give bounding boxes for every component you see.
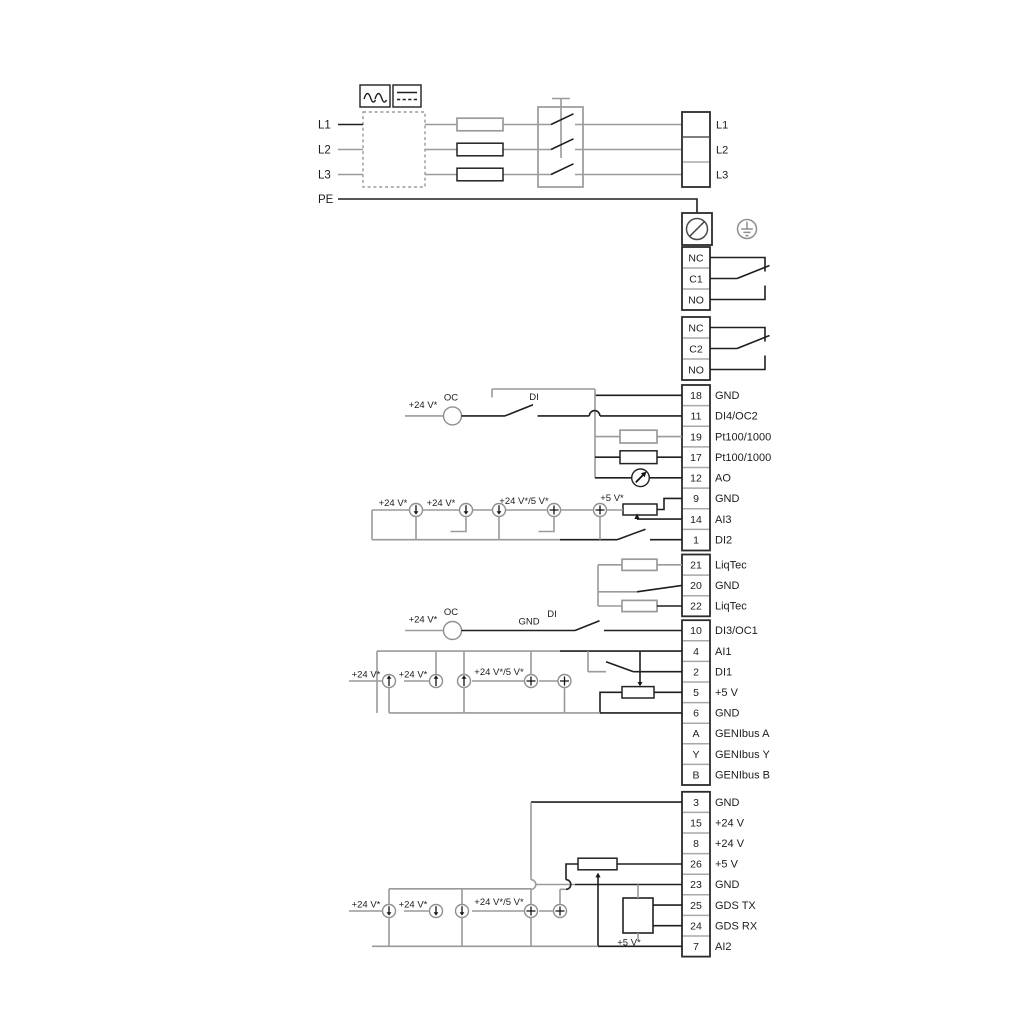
relay-1-block: NC C1 NO: [682, 247, 770, 310]
liqtec-sensor: [622, 559, 657, 570]
v24-v5-annotation: +24 V*/5 V*: [474, 897, 524, 908]
supply-module: +24 V* +24 V* +24 V*/5 V*: [349, 889, 567, 947]
terminal-label: GND: [715, 493, 740, 505]
terminal-label: +24 V: [715, 838, 745, 850]
terminal-number: 26: [690, 859, 702, 871]
terminal-number: 12: [690, 473, 702, 485]
terminal-label: Pt100/1000: [715, 431, 771, 443]
terminal-number: 22: [690, 601, 702, 613]
terminal-number: 1: [693, 534, 699, 546]
terminal-number: 3: [693, 797, 699, 809]
relay2-terminal: NC: [688, 322, 704, 334]
terminal-number: 20: [690, 580, 702, 592]
di-annotation: DI: [529, 392, 539, 403]
relay2-contact: [710, 328, 770, 370]
relay1-terminal: NO: [688, 294, 704, 306]
gnd-annotation: GND: [518, 616, 539, 627]
terminal-label: GND: [715, 580, 740, 592]
io-strip-top: 18 11 19 17 12 9 14 1 GND DI4/OC2 Pt100/…: [682, 385, 771, 551]
v5-annotation: +5 V*: [600, 493, 624, 504]
terminal-number: 2: [693, 666, 699, 678]
mains-input-label: L2: [318, 144, 331, 156]
terminal-label: AI3: [715, 514, 732, 526]
v24-annotation: +24 V*: [399, 669, 428, 680]
terminal-number: 6: [693, 708, 699, 720]
v24-annotation: +24 V*: [352, 899, 381, 910]
terminal-label: GND: [715, 708, 740, 720]
fuse: [457, 118, 503, 131]
terminal-label: GND: [715, 879, 740, 891]
mains-input-label: PE: [318, 194, 334, 206]
gds-sensor-box: +5 V*: [617, 885, 682, 949]
relay1-terminal: NC: [688, 252, 704, 264]
io-strip-bottom: 3 15 8 26 23 25 24 7 GND +24 V +24 V +5 …: [682, 792, 758, 957]
v24-v5-annotation: +24 V*/5 V*: [474, 667, 524, 678]
terminal-number: 11: [691, 411, 702, 423]
terminal-label: LiqTec: [715, 560, 747, 572]
terminal-label: GENIbus A: [715, 728, 770, 740]
terminal-number: 19: [690, 431, 702, 443]
relay2-terminal: C2: [689, 343, 703, 355]
ac-waveform-icon: [360, 85, 390, 107]
liqtec-sensor: [622, 600, 657, 611]
di2-switch-blade: [617, 529, 646, 540]
terminal-number: 15: [690, 817, 702, 829]
di-switch-blade: [505, 405, 533, 416]
v24-annotation: +24 V*: [399, 899, 428, 910]
ai3-di2-circuit: +24 V* +24 V* +24 V*/5 V* +5 V*: [372, 493, 682, 540]
terminal-number: 17: [690, 452, 702, 464]
terminal-label: GDS RX: [715, 920, 758, 932]
rcd-dashed-box: [363, 112, 425, 187]
relay-2-block: NC C2 NO: [682, 317, 770, 380]
v24-v5-annotation: +24 V*/5 V*: [499, 496, 549, 507]
wiper-arrow: [595, 873, 600, 878]
terminal-number: 4: [693, 646, 699, 658]
terminal-number: 24: [690, 920, 702, 932]
pt100-resistor: [620, 451, 657, 464]
schematic-svg: L1 L2 L3 PE: [0, 0, 1024, 1024]
potentiometer: [623, 504, 657, 515]
terminal-label: GENIbus Y: [715, 749, 770, 761]
v24-annotation: +24 V*: [427, 498, 456, 509]
mains-output-label: L1: [716, 119, 728, 131]
terminal-number: 7: [693, 941, 699, 953]
terminal-number: 5: [693, 687, 699, 699]
pt100-resistor: [620, 430, 657, 443]
terminal-label: GND: [715, 797, 740, 809]
di-switch-blade: [575, 621, 600, 631]
wiper-arrow: [638, 682, 643, 686]
liqtec-strip: 21 20 22 LiqTec GND LiqTec: [598, 555, 747, 617]
terminal-label: LiqTec: [715, 601, 747, 613]
fuse: [457, 168, 503, 181]
oc-circle-icon: [444, 407, 462, 425]
dc-lines-icon: [393, 85, 421, 107]
terminal-label: DI4/OC2: [715, 411, 758, 423]
di1-switch-blade: [606, 662, 634, 672]
terminal-label: GDS TX: [715, 900, 756, 912]
terminal-number: 18: [690, 390, 702, 402]
terminal-label: GND: [715, 390, 740, 402]
terminal-number: 23: [690, 879, 702, 891]
fuse: [457, 143, 503, 156]
v24-annotation: +24 V*: [379, 498, 408, 509]
terminal-label: DI3/OC1: [715, 625, 758, 637]
terminal-number: 9: [693, 493, 699, 505]
relay2-terminal: NO: [688, 364, 704, 376]
potentiometer: [578, 858, 617, 870]
terminal-number: 10: [690, 625, 702, 637]
mains-wires: [338, 125, 697, 214]
wire-jump: [531, 880, 536, 890]
oc-annotation: OC: [444, 607, 458, 618]
ai1-di1-circuit: +24 V* +24 V* +24 V*/5 V*: [349, 651, 682, 713]
di-annotation: DI: [547, 609, 557, 620]
terminal-label: +5 V: [715, 687, 739, 699]
di4-oc2-circuit: +24 V* OC DI: [405, 389, 682, 487]
io-strip-mid: 10 4 2 5 6 A Y B DI3/OC1 AI1 DI1 +5 V GN…: [682, 620, 770, 785]
terminal-number: A: [692, 728, 699, 740]
mains-output-label: L3: [716, 169, 728, 181]
terminal-number: Y: [692, 749, 699, 761]
v24-annotation: +24 V*: [409, 614, 438, 625]
terminal-label: DI1: [715, 666, 732, 678]
oc-circle-icon: [444, 622, 462, 640]
relay1-terminal: C1: [689, 273, 703, 285]
terminal-number: B: [692, 769, 699, 781]
earth-ground-icon: [738, 220, 757, 239]
terminal-label: AO: [715, 473, 731, 485]
terminal-number: 25: [690, 900, 702, 912]
mains-input-label: L3: [318, 169, 331, 181]
terminal-label: AI1: [715, 646, 732, 658]
potentiometer: [622, 687, 654, 698]
mains-input-label: L1: [318, 119, 331, 131]
mains-output-label: L2: [716, 144, 728, 156]
terminal-label: +24 V: [715, 817, 745, 829]
terminal-label: Pt100/1000: [715, 452, 771, 464]
terminal-number: 8: [693, 838, 699, 850]
terminal-label: GENIbus B: [715, 769, 770, 781]
analog-output-meter-icon: [632, 469, 650, 487]
v24-annotation: +24 V*: [352, 669, 381, 680]
terminal-label: +5 V: [715, 859, 739, 871]
mains-section: L1 L2 L3 PE: [318, 85, 757, 245]
oc-annotation: OC: [444, 392, 458, 403]
wiring-diagram-page: L1 L2 L3 PE: [0, 0, 1024, 1024]
terminal-number: 21: [690, 560, 702, 572]
pe-terminal: [682, 213, 712, 245]
supply-module: +24 V* +24 V* +24 V*/5 V*: [349, 651, 571, 713]
terminal-label: AI2: [715, 941, 732, 953]
v24-annotation: +24 V*: [409, 400, 438, 411]
mains-terminal-block: L1 L2 L3: [682, 112, 728, 187]
supply-module: +24 V* +24 V* +24 V*/5 V* +5 V*: [372, 493, 624, 540]
terminal-number: 14: [690, 514, 702, 526]
liqtec-sensor-wiring: [598, 559, 682, 611]
relay1-contact: [710, 258, 770, 300]
terminal-label: DI2: [715, 534, 732, 546]
ai2-gds-circuit: +5 V* +24 V* +24 V* +24 V*/5 V*: [349, 802, 682, 948]
